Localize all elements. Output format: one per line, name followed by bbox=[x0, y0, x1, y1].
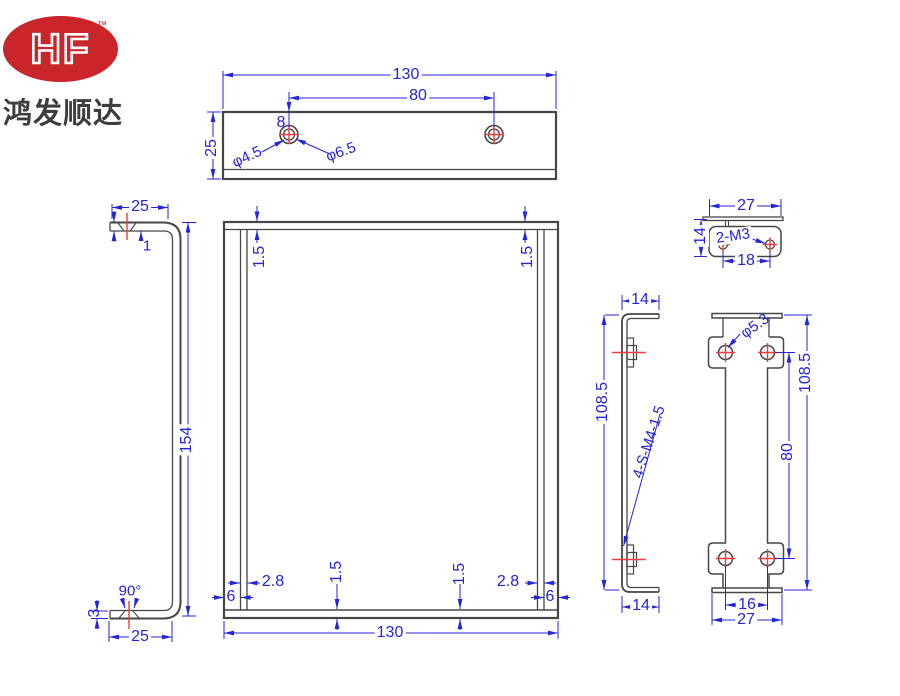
dim-front-width: 130 bbox=[375, 625, 406, 641]
dim-front-floor-left: 1.5 bbox=[329, 561, 345, 583]
dim-top-depth: 25 bbox=[204, 137, 220, 159]
dimension-lines bbox=[91, 71, 812, 642]
dim-left-csk-land: 1 bbox=[143, 239, 151, 254]
cad-drawing-canvas: HF ™ 鸿发顺达 bbox=[0, 0, 900, 696]
dim-top-hole-spacing: 80 bbox=[407, 88, 429, 104]
dim-top-width: 130 bbox=[391, 67, 422, 83]
dim-side-height: 108.5 bbox=[595, 380, 611, 424]
dim-bracket-height: 108.5 bbox=[798, 351, 814, 395]
dim-left-height: 154 bbox=[179, 425, 195, 456]
dim-left-flange-bottom: 25 bbox=[129, 629, 151, 645]
dim-clip-width: 27 bbox=[735, 198, 757, 214]
dim-left-thickness: 3 bbox=[87, 609, 103, 618]
dim-front-wall-top-left: 1.5 bbox=[252, 246, 268, 268]
dim-front-wall-top-right: 1.5 bbox=[520, 246, 536, 268]
dim-bracket-width: 27 bbox=[735, 612, 757, 628]
dim-front-rib-left: 2.8 bbox=[262, 574, 284, 590]
dim-front-edge-right: 6 bbox=[546, 589, 555, 605]
dim-front-rib-right: 2.8 bbox=[497, 574, 519, 590]
dim-left-csk-angle: 90° bbox=[119, 584, 142, 599]
dim-side-flange-bottom: 14 bbox=[630, 598, 652, 614]
dim-left-flange-top: 25 bbox=[129, 199, 151, 215]
dim-bracket-hole-span: 80 bbox=[780, 441, 796, 463]
dim-side-flange-top: 14 bbox=[629, 292, 651, 308]
dim-clip-height: 14 bbox=[693, 225, 709, 247]
dim-top-hole-offset: 8 bbox=[277, 115, 286, 131]
dim-front-floor-right: 1.5 bbox=[452, 563, 468, 585]
part-outlines bbox=[110, 112, 784, 619]
dim-clip-hole-pitch: 18 bbox=[735, 253, 757, 269]
dim-front-edge-left: 6 bbox=[227, 589, 236, 605]
